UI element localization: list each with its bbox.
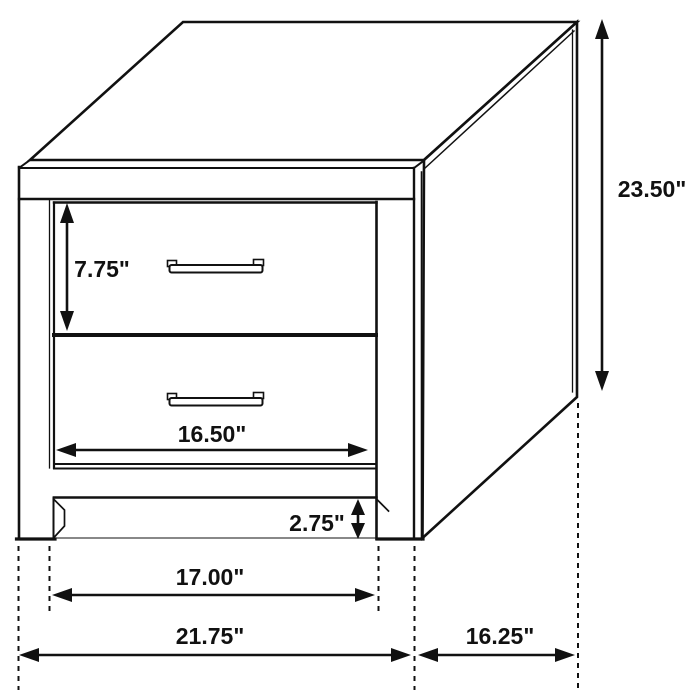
- label-leg-clearance: 2.75": [289, 510, 345, 536]
- label-overall-height: 23.50": [618, 176, 686, 202]
- handle-2-bar: [170, 398, 263, 406]
- dimension-diagram: 7.75" 23.50" 16.50" 2.75" 17.00" 21.75" …: [0, 0, 700, 700]
- dim-arrow-between-legs: [52, 588, 375, 602]
- label-overall-width: 21.75": [176, 623, 244, 649]
- dim-arrow-overall-width: [19, 648, 411, 662]
- label-between-legs: 17.00": [176, 564, 244, 590]
- handle-1-bar: [170, 265, 263, 273]
- diagram-canvas: 7.75" 23.50" 16.50" 2.75" 17.00" 21.75" …: [0, 0, 700, 700]
- label-drawer-width: 16.50": [178, 421, 246, 447]
- label-depth: 16.25": [466, 623, 534, 649]
- label-drawer-height: 7.75": [74, 256, 130, 282]
- dim-arrow-depth: [418, 648, 575, 662]
- dim-arrow-overall-height: [595, 19, 609, 391]
